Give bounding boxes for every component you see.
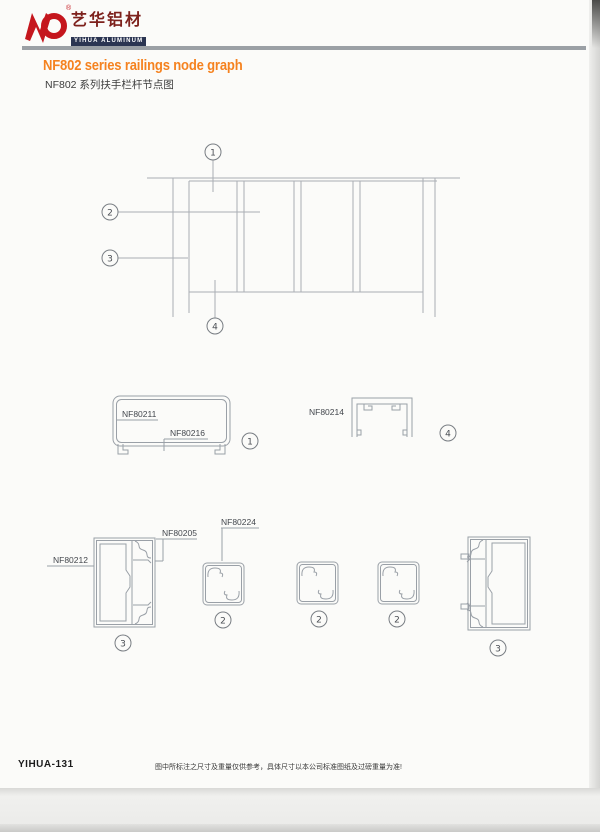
callout-2: 2	[215, 612, 231, 628]
page-code: YIHUA-131	[18, 759, 74, 770]
callout-4-number: 4	[212, 323, 218, 333]
railing-elevation: 1 2 3 4	[102, 144, 460, 334]
footer-disclaimer: 图中所标注之尺寸及重量仅供参考，具体尺寸以本公司标准图纸及过磅重量为准!	[155, 762, 402, 772]
callout-2-number: 2	[394, 616, 400, 626]
scan-bottom-shadow	[0, 824, 600, 832]
callout-3: 3	[115, 635, 131, 651]
profile-section-post-right: 3	[461, 537, 530, 656]
profile-section-post-left: NF80212 NF80205 3	[47, 528, 197, 651]
callout-2: 2	[311, 611, 327, 627]
callout-4-number: 4	[445, 430, 451, 440]
node-graph-drawing: 1 2 3 4 NF80211 NF80216	[0, 0, 600, 832]
profile-section-square-1: 2 NF80224	[203, 517, 259, 628]
callout-3: 3	[102, 250, 118, 266]
callout-1: 1	[242, 433, 258, 449]
label-nf80214: NF80214	[309, 407, 344, 417]
callout-2: 2	[389, 611, 405, 627]
profile-section-handrail: NF80211 NF80216 1	[113, 396, 258, 454]
scan-page-edge-right	[589, 0, 600, 790]
callout-3-number: 3	[495, 645, 501, 655]
callout-2-number: 2	[107, 209, 113, 219]
callout-4: 4	[440, 425, 456, 441]
label-nf80205: NF80205	[162, 528, 197, 538]
label-nf80212: NF80212	[53, 555, 88, 565]
callout-3-number: 3	[107, 255, 113, 265]
callout-4: 4	[207, 318, 223, 334]
callout-2-number: 2	[220, 617, 226, 627]
catalog-page: ® 艺华铝材 YIHUA ALUMINUM NF802 series raili…	[0, 0, 600, 832]
callout-1-number: 1	[210, 149, 216, 159]
label-nf80216: NF80216	[170, 428, 205, 438]
callout-1-number: 1	[247, 438, 253, 448]
label-nf80224: NF80224	[221, 517, 256, 527]
label-nf80211: NF80211	[122, 409, 157, 419]
callout-3-number: 3	[120, 640, 126, 650]
profile-section-square-2: 2	[297, 562, 338, 627]
callout-2: 2	[102, 204, 118, 220]
profile-section-square-3: 2	[378, 562, 419, 627]
callout-2-number: 2	[316, 616, 322, 626]
callout-3: 3	[490, 640, 506, 656]
callout-1: 1	[205, 144, 221, 160]
profile-section-bottom-rail: NF80214 4	[309, 398, 456, 441]
scan-corner-shadow	[592, 0, 600, 48]
